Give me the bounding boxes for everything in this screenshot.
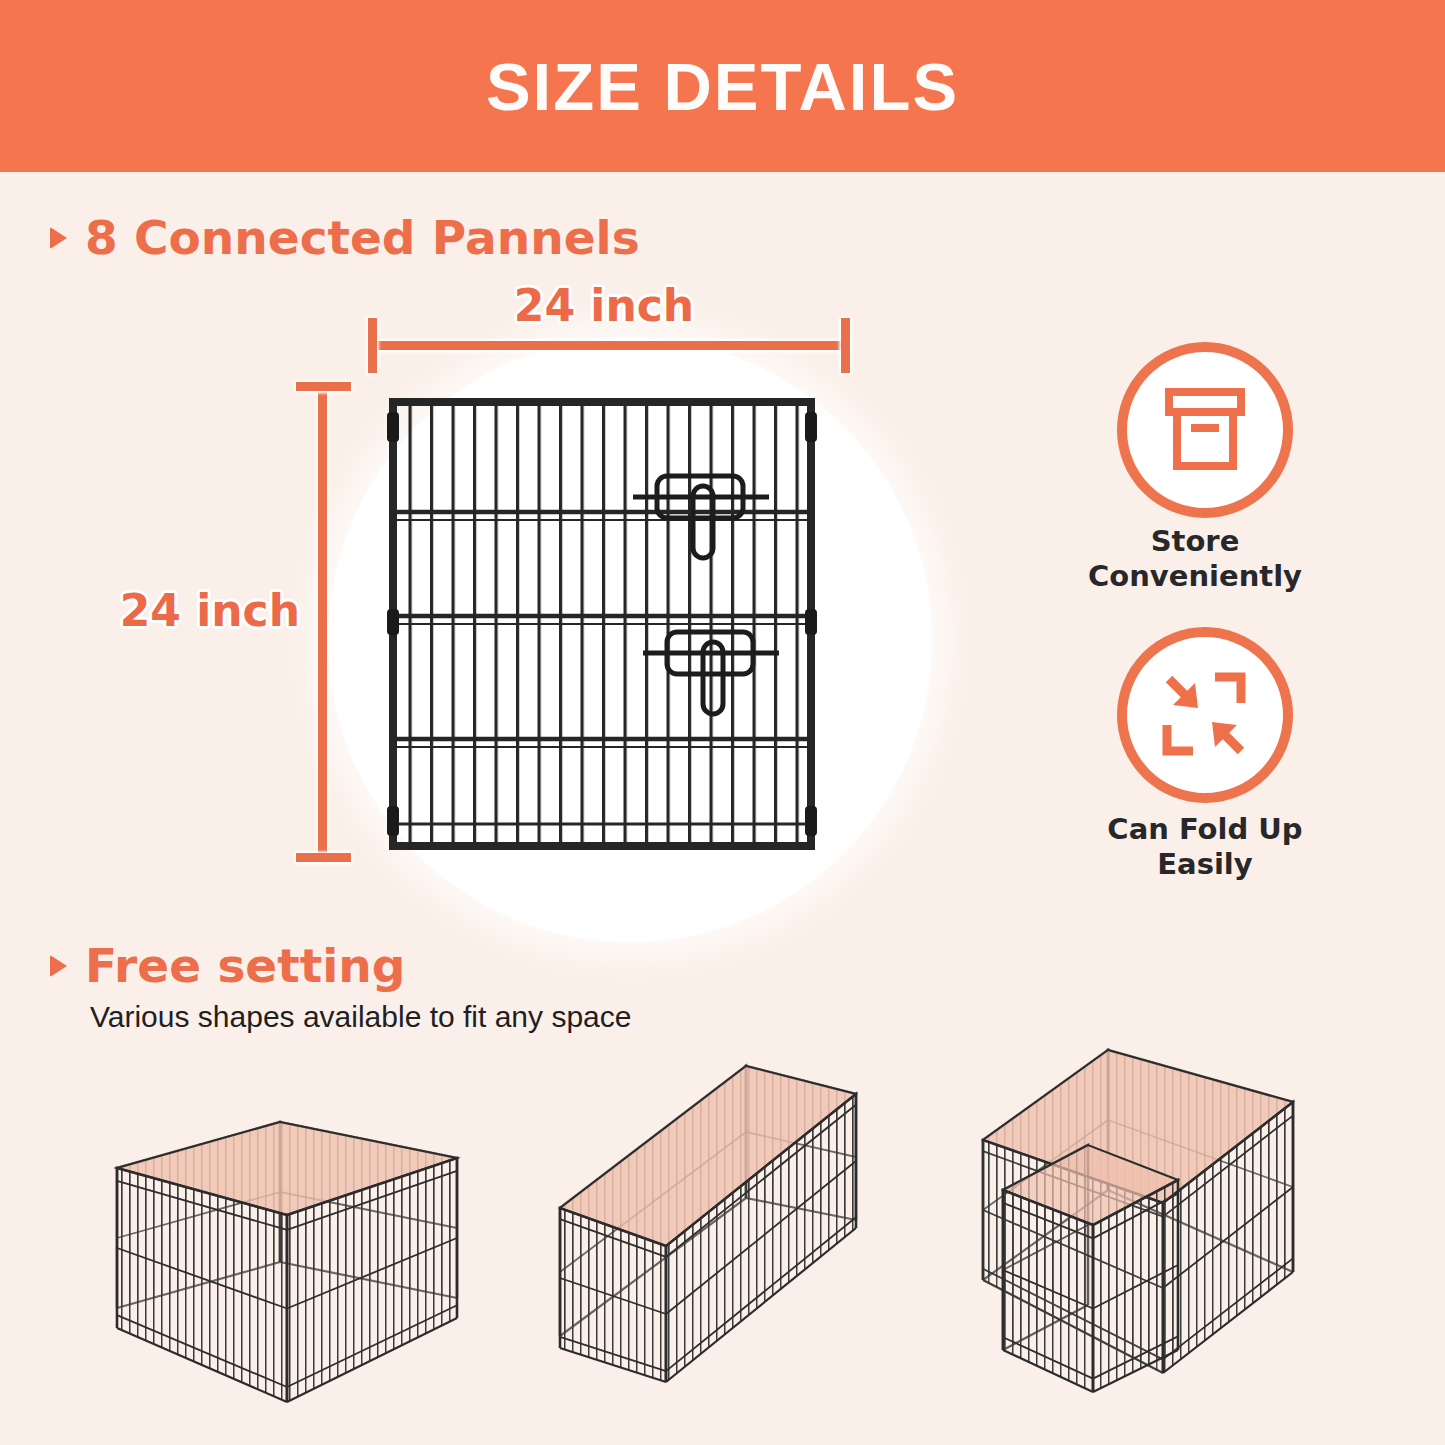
header-banner: SIZE DETAILS: [0, 0, 1445, 172]
feature-label: Store Conveniently: [1083, 524, 1307, 594]
dimension-label-height: 24 inch: [85, 585, 300, 636]
section-panels-heading-label: 8 Connected Pannels: [85, 210, 640, 265]
dimension-label-width: 24 inch: [444, 280, 764, 331]
dimension-line-vertical: [318, 386, 327, 858]
feature-label: Can Fold Up Easily: [1093, 812, 1317, 882]
l-shape-playpen-image: [948, 1040, 1303, 1400]
triangle-bullet-icon: [50, 227, 67, 249]
infographic-page: SIZE DETAILS 8 Connected Pannels 24 inch…: [0, 0, 1445, 1445]
square-playpen-image: [105, 1110, 470, 1410]
section-panels-heading: 8 Connected Pannels: [50, 210, 640, 265]
triangle-bullet-icon: [50, 955, 67, 977]
free-setting-subheading: Various shapes available to fit any spac…: [90, 1000, 631, 1034]
feature-circle: [1117, 342, 1293, 518]
storage-box-icon: [1155, 380, 1255, 480]
section-free-setting-heading: Free setting: [50, 938, 405, 993]
dimension-cap-bottom: [296, 853, 351, 862]
dimension-cap-top: [296, 382, 351, 391]
dimension-cap-right: [841, 318, 850, 373]
section-free-setting-heading-label: Free setting: [85, 938, 405, 993]
fold-arrows-icon: [1153, 663, 1257, 767]
dimension-line-horizontal: [372, 341, 849, 350]
wire-panel-image: [387, 394, 817, 854]
feature-circle: [1117, 627, 1293, 803]
page-title: SIZE DETAILS: [486, 48, 959, 125]
rectangle-playpen-image: [548, 1056, 868, 1391]
dimension-cap-left: [368, 318, 377, 373]
